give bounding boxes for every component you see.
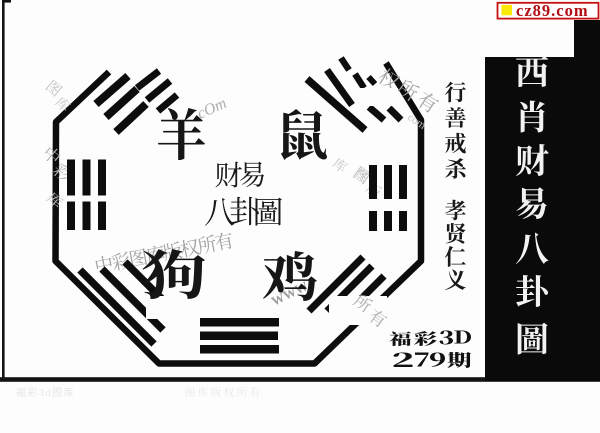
svg-text:福彩3d图库: 福彩3d图库 [16, 386, 75, 399]
svg-text:cz89.com: cz89.com [516, 1, 589, 20]
